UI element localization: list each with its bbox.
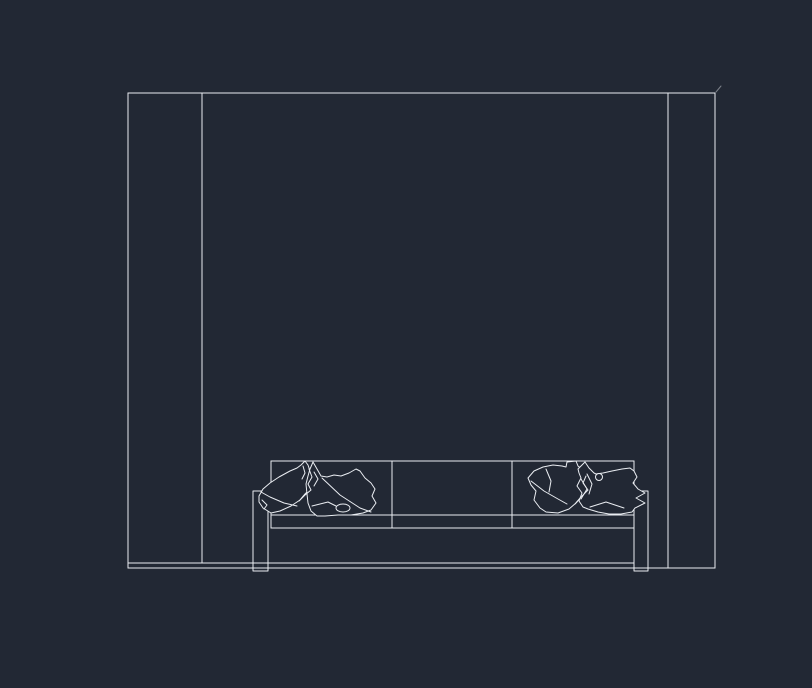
- cad-drawing-canvas[interactable]: [0, 0, 812, 688]
- pillow-left-front-tuft[interactable]: [336, 504, 350, 512]
- pillow-right-front-outline[interactable]: [577, 462, 645, 514]
- pillow-right-front-button[interactable]: [596, 474, 603, 481]
- corner-speck[interactable]: [716, 86, 721, 92]
- drawing-svg: [0, 0, 812, 688]
